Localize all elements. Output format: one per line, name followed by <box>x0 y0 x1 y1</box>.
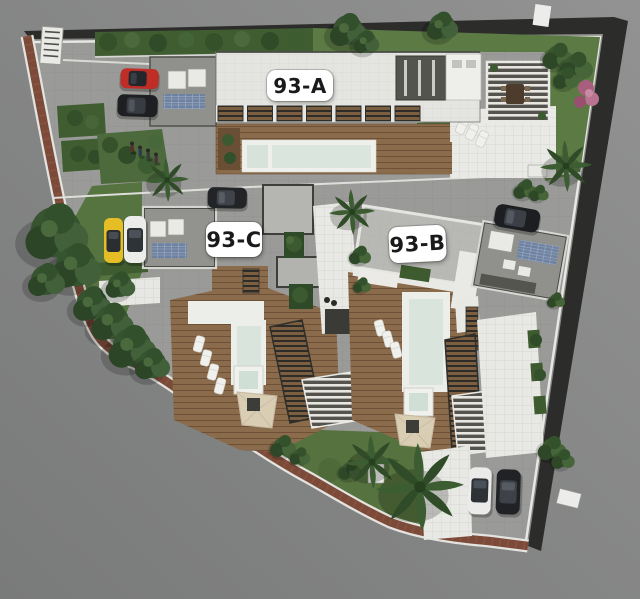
stair-louver-93c <box>243 269 259 293</box>
solar-93c <box>152 243 187 258</box>
roof-93c-upper <box>263 185 313 234</box>
car-black-central <box>207 187 248 212</box>
car-yellow <box>104 218 125 266</box>
car-black-entrance <box>116 94 159 120</box>
entrance-gate <box>40 26 64 64</box>
car-white-guest <box>124 216 148 266</box>
louver-modules-93a <box>218 106 420 121</box>
car-red <box>119 68 160 92</box>
lap-pool-93a <box>272 145 371 168</box>
solar-93a <box>163 94 205 109</box>
unit-label-93-a[interactable]: 93-A <box>267 70 333 101</box>
roof-93a-west <box>150 57 216 126</box>
gate-north <box>533 4 552 27</box>
pergola-93a <box>487 62 549 122</box>
pool-93b <box>409 299 443 385</box>
cabana-93b <box>395 414 435 448</box>
unit-label-93-b[interactable]: 93-B <box>388 225 447 264</box>
car-black-south <box>495 469 523 518</box>
cabana-93c <box>237 392 277 428</box>
unit-label-93-c[interactable]: 93-C <box>206 222 262 257</box>
deck-93a-east <box>417 142 452 174</box>
plunge-pool-93a <box>247 145 268 168</box>
dining-table-93a <box>506 84 524 104</box>
car-white-south <box>467 467 494 518</box>
site-plan-render: 93-A 93-C 93-B <box>0 0 640 599</box>
